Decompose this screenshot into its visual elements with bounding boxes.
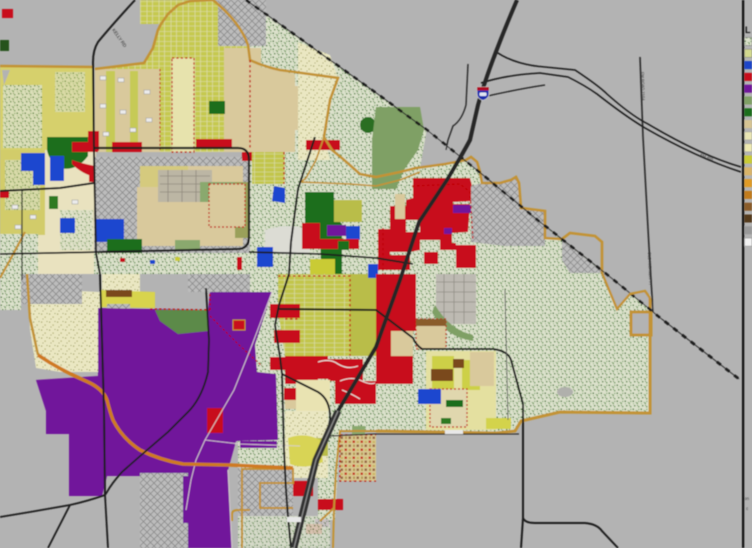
svg-text:FM ROAD 2164: FM ROAD 2164 [640, 72, 646, 101]
svg-text:on: on [744, 496, 750, 501]
svg-text:L: L [745, 25, 751, 35]
